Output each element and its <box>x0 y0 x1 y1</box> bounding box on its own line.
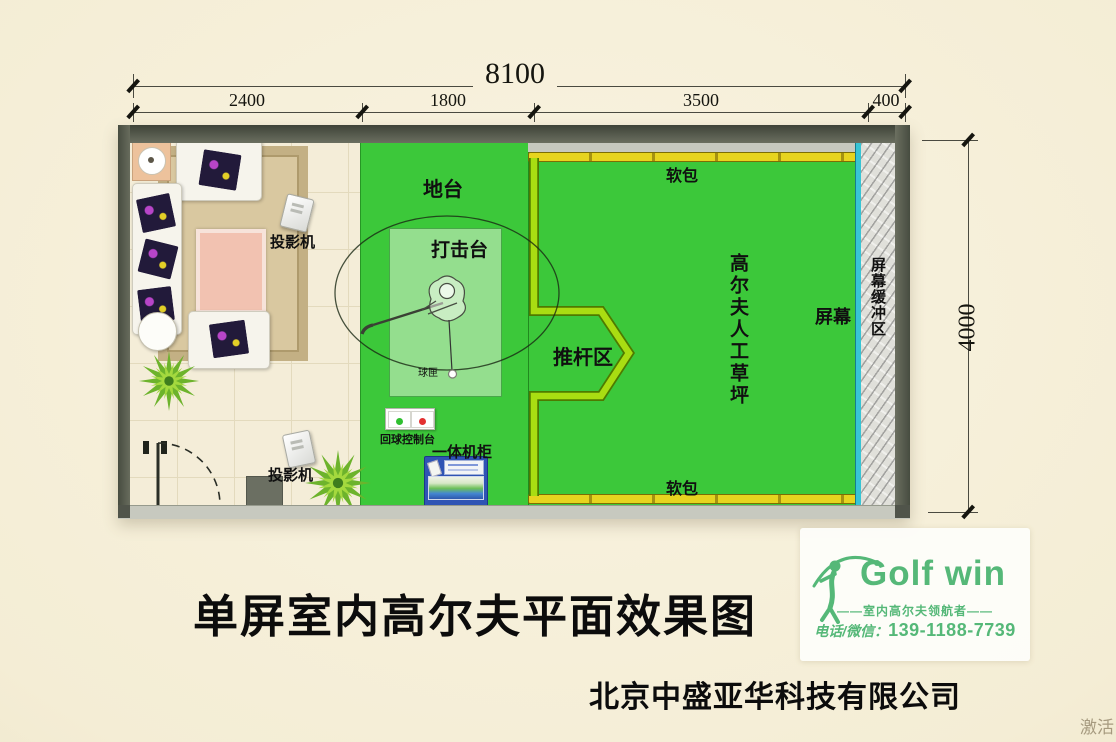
dimension-ext <box>928 512 978 513</box>
armchair-bottom <box>188 311 270 369</box>
label-artificial-turf: 高尔夫人工草坪 <box>724 253 751 407</box>
canvas: { "dimensions": { "total_width": "8100",… <box>0 0 1116 742</box>
dimension-line-segments <box>133 112 905 113</box>
dimension-segment-label: 2400 <box>207 90 287 111</box>
dimension-line <box>557 86 905 87</box>
label-putting-zone: 推杆区 <box>553 341 613 370</box>
dimension-line <box>133 86 473 87</box>
door-jamb <box>143 441 149 454</box>
phone-number: 139-1188-7739 <box>888 620 1016 640</box>
dimension-height-label: 4000 <box>955 288 982 368</box>
ball-tether-line <box>449 320 452 371</box>
lamp-center <box>148 157 154 163</box>
label-projector-bottom: 投影机 <box>268 464 313 485</box>
company-name: 北京中盛亚华科技有限公司 <box>530 672 1020 716</box>
plant <box>138 350 200 412</box>
golf-club-head <box>362 325 373 334</box>
cabinet-control-panel <box>444 460 484 475</box>
label-all-in-one-cabinet: 一体机柜 <box>432 441 492 462</box>
label-ball-return-console: 回球控制台 <box>380 431 435 447</box>
brand-tagline: ——室内高尔夫领航者—— <box>800 602 1030 619</box>
wall-top <box>118 125 910 143</box>
floor-plan: 地台 打击台 推杆区 高尔夫人工草坪 软包 软包 屏幕 屏幕缓冲区 投影机 投影… <box>118 125 910 518</box>
cabinet-screen <box>428 476 484 500</box>
label-ball-box: 球匣 <box>418 364 438 379</box>
label-hitting-station: 打击台 <box>431 235 488 262</box>
label-screen: 屏幕 <box>815 303 851 329</box>
dimension-segment-label: 1800 <box>408 90 488 111</box>
dimension-segment-label: 3500 <box>661 90 741 111</box>
green-indicator <box>396 418 403 425</box>
wall-left <box>118 125 130 518</box>
golf-ball <box>449 370 457 378</box>
activation-watermark: 激活 <box>1080 713 1114 738</box>
wall-bottom <box>118 505 910 519</box>
console-cell <box>411 411 434 428</box>
label-soft-padding-bottom: 软包 <box>666 475 698 499</box>
armchair-top <box>176 139 262 201</box>
corner-side-table <box>132 141 171 181</box>
dimension-total-label: 8100 <box>473 57 557 91</box>
wall-corner <box>895 505 910 518</box>
phone-label: 电话/微信： <box>814 623 888 639</box>
cabinet-remote <box>427 460 442 478</box>
phone-line: 电话/微信：139-1188-7739 <box>800 620 1030 641</box>
door <box>143 441 220 505</box>
sofa-pillow <box>209 320 249 359</box>
dimension-segment-label: 400 <box>856 90 916 111</box>
round-side-table <box>138 312 177 351</box>
label-platform: 地台 <box>423 173 463 202</box>
ball-return-console <box>385 408 435 430</box>
sofa-pillow <box>136 193 176 233</box>
brand-name: Golf win <box>860 554 1006 594</box>
golfer-top-view <box>362 276 465 378</box>
coffee-table <box>196 229 266 314</box>
logo-card: Golf win ——室内高尔夫领航者—— 电话/微信：139-1188-773… <box>800 528 1030 661</box>
red-indicator <box>419 418 426 425</box>
console-cell <box>388 411 411 428</box>
sofa-pillow <box>198 149 241 191</box>
wall-right <box>895 125 910 518</box>
label-projector-top: 投影机 <box>270 231 315 252</box>
wall-corner <box>118 505 130 518</box>
sofa-pillow <box>137 238 178 279</box>
label-screen-buffer: 屏幕缓冲区 <box>867 257 888 337</box>
golfer-head <box>440 284 455 299</box>
door-swing-arc <box>158 443 220 505</box>
all-in-one-cabinet <box>424 456 488 507</box>
label-soft-padding-top: 软包 <box>666 162 698 186</box>
page-title: 单屏室内高尔夫平面效果图 <box>150 580 800 645</box>
